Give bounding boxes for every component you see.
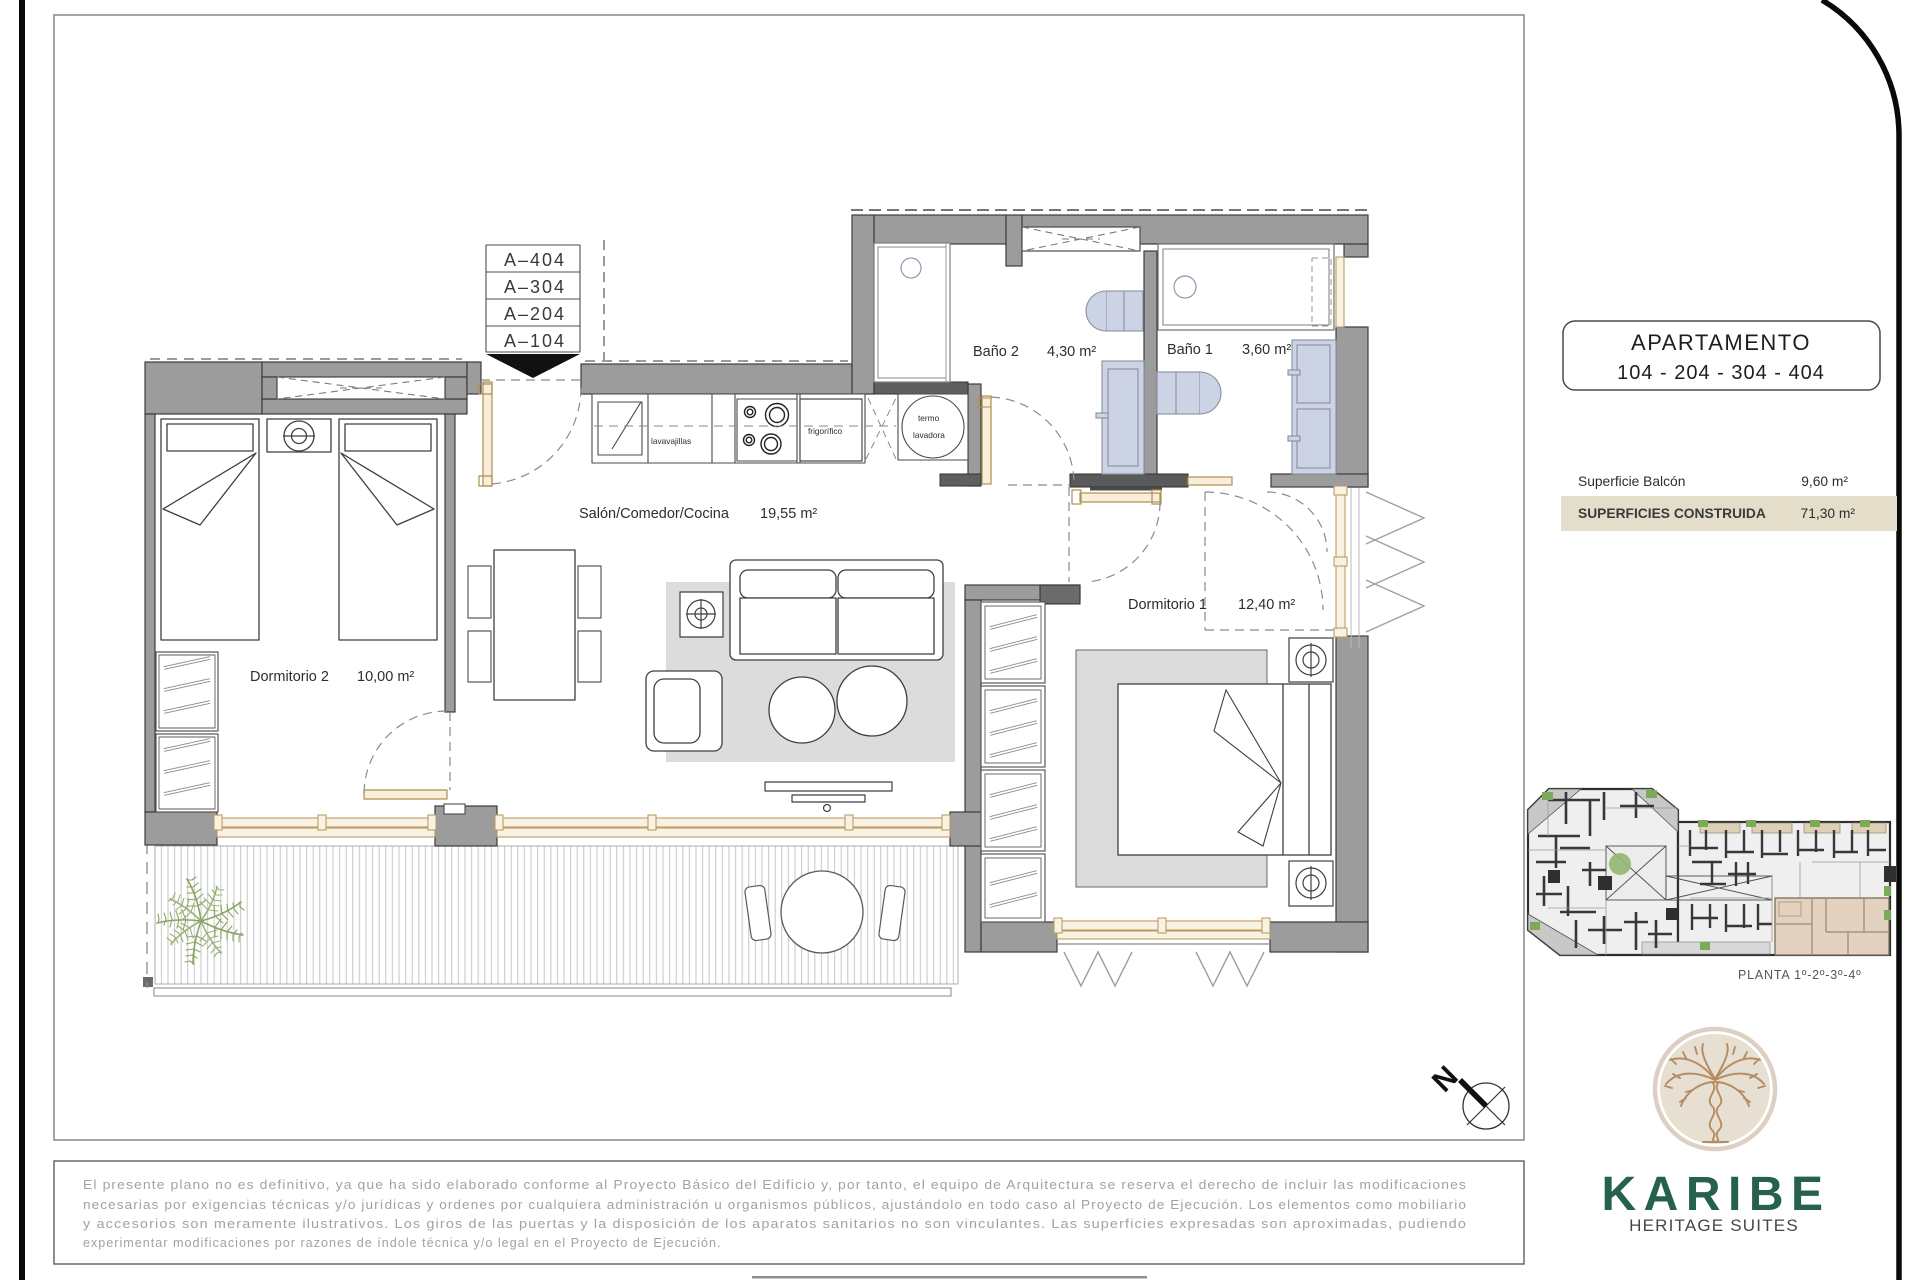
svg-text:A–404: A–404 bbox=[504, 250, 566, 270]
svg-text:A–104: A–104 bbox=[504, 331, 566, 351]
svg-text:Baño 2: Baño 2 bbox=[973, 344, 1019, 360]
svg-text:10,00 m²: 10,00 m² bbox=[357, 669, 414, 685]
svg-text:71,30 m²: 71,30 m² bbox=[1801, 506, 1856, 521]
svg-text:9,60 m²: 9,60 m² bbox=[1801, 474, 1848, 489]
svg-text:Salón/Comedor/Cocina: Salón/Comedor/Cocina bbox=[579, 506, 730, 522]
svg-text:frigorífico: frigorífico bbox=[808, 426, 843, 436]
svg-text:Superficie Balcón: Superficie Balcón bbox=[1578, 474, 1685, 489]
svg-text:SUPERFICIES CONSTRUIDA: SUPERFICIES CONSTRUIDA bbox=[1578, 506, 1766, 521]
svg-text:PLANTA 1º-2º-3º-4º: PLANTA 1º-2º-3º-4º bbox=[1738, 968, 1861, 982]
svg-text:termo: termo bbox=[918, 413, 940, 423]
svg-text:104 - 204 - 304 - 404: 104 - 204 - 304 - 404 bbox=[1617, 362, 1825, 384]
svg-text:3,60 m²: 3,60 m² bbox=[1242, 342, 1291, 358]
svg-text:lavadora: lavadora bbox=[913, 430, 945, 440]
svg-text:A–204: A–204 bbox=[504, 304, 566, 324]
svg-text:lavavajillas: lavavajillas bbox=[651, 436, 691, 446]
svg-text:El presente plano no es defini: El presente plano no es definitivo, ya q… bbox=[83, 1178, 1467, 1192]
svg-text:19,55 m²: 19,55 m² bbox=[760, 506, 817, 522]
svg-text:Baño 1: Baño 1 bbox=[1167, 342, 1213, 358]
svg-text:Dormitorio 2: Dormitorio 2 bbox=[250, 669, 329, 685]
svg-text:Dormitorio 1: Dormitorio 1 bbox=[1128, 597, 1207, 613]
svg-text:KARIBE: KARIBE bbox=[1601, 1168, 1830, 1221]
svg-text:12,40 m²: 12,40 m² bbox=[1238, 597, 1295, 613]
svg-text:y accesorios son meramente ilu: y accesorios son meramente ilustrativos.… bbox=[83, 1217, 1467, 1231]
svg-text:4,30 m²: 4,30 m² bbox=[1047, 344, 1096, 360]
svg-text:APARTAMENTO: APARTAMENTO bbox=[1631, 330, 1811, 355]
svg-text:HERITAGE SUITES: HERITAGE SUITES bbox=[1629, 1216, 1799, 1235]
svg-text:necesarias por exigencias técn: necesarias por exigencias técnicas y/o j… bbox=[83, 1198, 1467, 1212]
svg-text:A–304: A–304 bbox=[504, 277, 566, 297]
svg-text:experimentar modificaciones po: experimentar modificaciones por razones … bbox=[83, 1236, 722, 1250]
